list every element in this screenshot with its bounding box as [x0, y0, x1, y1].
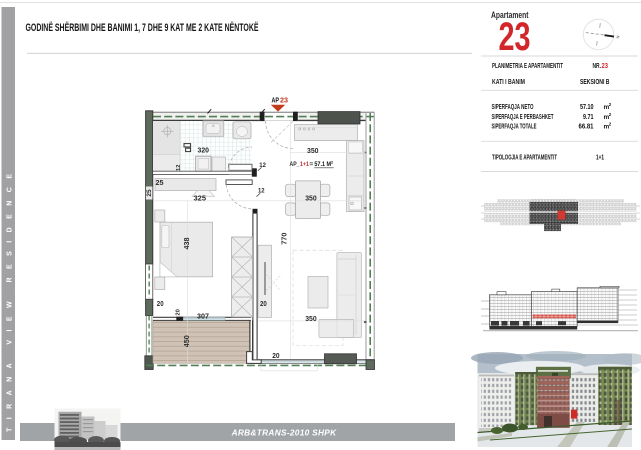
svg-text:25: 25 [146, 189, 153, 197]
svg-text:N: N [615, 35, 620, 38]
svg-text:350: 350 [305, 314, 317, 323]
svg-text:350: 350 [305, 194, 317, 203]
svg-text:770: 770 [280, 233, 289, 245]
svg-text:SEKSIONI B: SEKSIONI B [580, 77, 610, 86]
svg-text:NR.: NR. [593, 63, 602, 70]
svg-text:AP_: AP_ [290, 161, 300, 168]
svg-text:20: 20 [272, 353, 279, 360]
svg-text:320: 320 [198, 146, 210, 155]
svg-text:12: 12 [176, 165, 182, 171]
svg-text:SIPERFAQJA TOTALE: SIPERFAQJA TOTALE [492, 123, 537, 130]
svg-text:1+1: 1+1 [596, 152, 604, 161]
svg-text:GODINË SHËRBIMI DHE BANIMI 1,: GODINË SHËRBIMI DHE BANIMI 1, 7 DHE 9 KA… [26, 21, 259, 34]
svg-text:23: 23 [280, 98, 288, 105]
svg-text:AP: AP [272, 98, 280, 105]
svg-text:KATI I BANIM: KATI I BANIM [492, 77, 525, 86]
svg-text:SIPERFAQJA NETO: SIPERFAQJA NETO [492, 104, 534, 111]
svg-text:25: 25 [156, 180, 164, 187]
svg-text:325: 325 [194, 194, 207, 203]
svg-text:23: 23 [499, 15, 531, 59]
svg-text:307: 307 [197, 311, 209, 320]
svg-text:1+1: 1+1 [300, 161, 309, 168]
svg-text:66.81: 66.81 [579, 123, 594, 130]
svg-text:20: 20 [260, 301, 267, 308]
svg-text:SIPERFAQJA E PERBASHKET: SIPERFAQJA E PERBASHKET [492, 114, 554, 121]
svg-text:20: 20 [157, 301, 164, 308]
svg-text:TIPOLOGJIA E APARTAMENTIT: TIPOLOGJIA E APARTAMENTIT [492, 152, 557, 161]
svg-text:23: 23 [602, 63, 609, 70]
svg-text:57.1 M²: 57.1 M² [314, 161, 333, 168]
svg-text:438: 438 [182, 238, 191, 250]
svg-text:450: 450 [182, 335, 191, 347]
svg-text:PLANIMETRIA E APARTAMENTIT: PLANIMETRIA E APARTAMENTIT [492, 61, 563, 70]
svg-text:12: 12 [259, 162, 266, 169]
svg-text:=: = [309, 161, 313, 168]
svg-text:57.10: 57.10 [580, 104, 594, 111]
svg-text:ARB&TRANS-2010 SHPK: ARB&TRANS-2010 SHPK [231, 427, 338, 437]
svg-text:9.71: 9.71 [583, 114, 594, 121]
svg-text:350: 350 [307, 146, 319, 155]
svg-text:12: 12 [258, 188, 265, 195]
svg-text:20: 20 [175, 309, 181, 315]
